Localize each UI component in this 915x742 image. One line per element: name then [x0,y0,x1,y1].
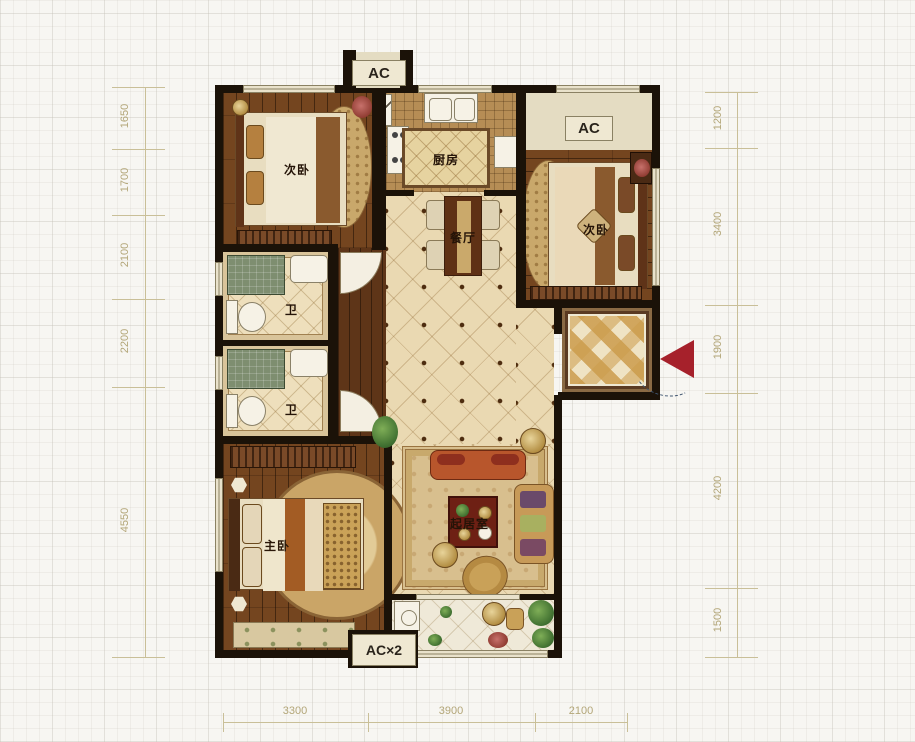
bed-master [228,498,364,590]
bedside-lamp [232,99,249,116]
sofa-cushion [520,491,546,508]
wall [386,190,414,196]
headboard [236,113,244,227]
label-bedroom-top-left: 次卧 [284,161,310,178]
sink-basin [429,98,452,121]
dim-tick [705,393,758,394]
dim-label: 1700 [119,150,131,210]
dim-line-bottom [223,722,627,723]
shower [227,255,285,295]
dim-tick [112,215,165,216]
nightstand [630,152,652,184]
toilet-tank [226,394,238,428]
washing-machine [394,601,420,631]
ac-unit-bottom: AC×2 [352,634,416,666]
dim-tick [627,713,628,732]
kitchen-sink [424,93,478,123]
blanket-fold [316,117,340,223]
floorplan-canvas: 次卧 厨房 次卧 餐厅 卫 卫 起居室 主卧 AC AC AC×2 1650 1… [0,0,915,742]
dim-tick [705,657,758,658]
window [243,85,335,93]
shower [227,349,285,389]
dim-label: 1650 [119,86,131,146]
balcony-plant [532,628,554,648]
sofa-cushion [520,515,546,532]
wall [215,436,392,444]
pillow [242,504,262,544]
window [215,356,223,390]
rattan-throw [323,503,361,589]
burner [392,157,398,163]
dim-tick [223,713,224,732]
window-planter [233,622,355,648]
wall [558,392,660,400]
balcony-plant [428,634,442,646]
label-bath-upper: 卫 [285,301,298,318]
dim-line-right [737,92,738,657]
dim-label: 1200 [712,88,724,148]
dim-label: 3900 [421,705,481,717]
wardrobe [230,446,356,468]
pillow [246,171,264,205]
dim-line-left [145,87,146,657]
label-kitchen: 厨房 [433,151,459,168]
balcony-table [482,602,506,626]
foyer-checker-tiles [568,314,646,386]
sink-basin [454,98,475,121]
dim-tick [535,713,536,732]
bolster-pillow [437,454,465,465]
dim-label: 4200 [712,458,724,518]
label-master-bedroom: 主卧 [264,537,290,554]
window [215,262,223,296]
ac-unit-right: AC [565,116,613,141]
dim-tick [112,657,165,658]
wall [484,190,518,196]
dim-tick [368,713,369,732]
side-table [520,428,546,454]
toilet-bowl [238,302,266,332]
window [398,650,548,658]
dim-label: 3400 [712,194,724,254]
dim-label: 2100 [551,705,611,717]
pillow [618,235,635,271]
dim-tick [705,148,758,149]
wall [520,594,556,600]
window [652,168,660,286]
wall [516,92,526,308]
toilet-tank [226,300,238,334]
dim-label: 4550 [119,490,131,550]
balcony-plant [528,600,554,626]
sofa-cushion [520,539,546,556]
balcony-plant [440,606,452,618]
window [215,478,223,572]
dim-tick [112,387,165,388]
pillow [242,547,262,587]
bolster-pillow [491,454,519,465]
wall [524,300,660,308]
window [416,594,520,600]
dim-tick [112,299,165,300]
wall [328,248,338,440]
blanket [305,499,323,591]
pillow [246,125,264,159]
washbasin [290,349,328,377]
label-living: 起居室 [450,515,489,532]
bench-sofa [430,450,526,480]
window [556,85,640,93]
toilet-bowl [238,396,266,426]
dim-tick [705,588,758,589]
palm-plant [372,416,398,448]
balcony-plant [488,632,508,648]
wall [554,395,562,658]
room-hall-east [516,308,554,444]
wall [222,340,328,346]
entry-arrow-icon [660,340,694,378]
wall [215,244,338,252]
dim-label: 3300 [265,705,325,717]
dim-label: 2100 [119,225,131,285]
washer-drum [401,610,417,626]
headboard [229,499,240,591]
dim-tick [705,305,758,306]
burner [392,132,398,138]
balcony-chair [506,608,524,630]
label-bath-lower: 卫 [285,401,298,418]
dim-label: 1500 [712,590,724,650]
label-bedroom-right: 次卧 [583,221,609,238]
label-dining: 餐厅 [450,229,476,246]
side-table [432,542,458,568]
dim-label: 2200 [119,311,131,371]
window [418,85,492,93]
dresser [237,230,332,245]
dresser [530,286,642,300]
flower-decor [634,159,650,177]
ac-unit-top: AC [352,60,406,86]
flower-decor [352,96,372,118]
washbasin [290,255,328,283]
dim-label: 1900 [712,317,724,377]
wall [372,92,386,250]
wall [554,308,562,334]
wall [384,436,392,652]
sofa [514,484,554,564]
fridge [494,136,518,168]
wall [386,594,416,600]
